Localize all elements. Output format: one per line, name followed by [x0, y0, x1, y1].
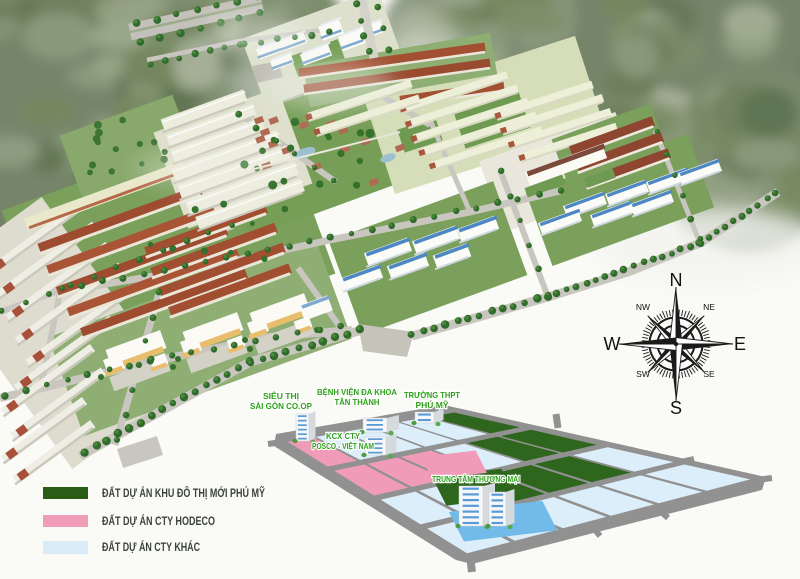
svg-text:SÀI GÒN CO.OP: SÀI GÒN CO.OP [250, 400, 312, 411]
svg-text:TRƯỜNG THPT: TRƯỜNG THPT [404, 389, 461, 400]
svg-text:N: N [670, 270, 683, 290]
svg-text:ĐẤT DỰ ÁN CTY HODECO: ĐẤT DỰ ÁN CTY HODECO [102, 515, 215, 528]
svg-text:SIÊU THỊ: SIÊU THỊ [263, 390, 299, 401]
svg-text:NE: NE [703, 302, 715, 312]
svg-text:TÂN THÀNH: TÂN THÀNH [335, 396, 380, 407]
svg-text:SW: SW [636, 369, 650, 379]
svg-text:S: S [670, 398, 682, 418]
svg-text:POSCO - VIỆT NAM: POSCO - VIỆT NAM [312, 442, 374, 451]
svg-text:W: W [604, 334, 621, 354]
svg-text:KCX CTY: KCX CTY [326, 432, 361, 441]
svg-text:SE: SE [703, 369, 715, 379]
svg-text:E: E [734, 334, 746, 354]
svg-text:ĐẤT DỰ ÁN KHU ĐÔ THỊ MỚI PHÚ M: ĐẤT DỰ ÁN KHU ĐÔ THỊ MỚI PHÚ MỸ [102, 487, 265, 500]
svg-text:PHÚ MỸ: PHÚ MỸ [416, 399, 449, 410]
svg-text:ĐẤT DỰ ÁN CTY KHÁC: ĐẤT DỰ ÁN CTY KHÁC [102, 541, 200, 554]
svg-text:BỆNH VIỆN ĐA KHOA: BỆNH VIỆN ĐA KHOA [317, 386, 397, 397]
svg-text:TRUNG TÂM THƯƠNG MẠI: TRUNG TÂM THƯƠNG MẠI [432, 473, 520, 484]
svg-text:NW: NW [636, 302, 650, 312]
